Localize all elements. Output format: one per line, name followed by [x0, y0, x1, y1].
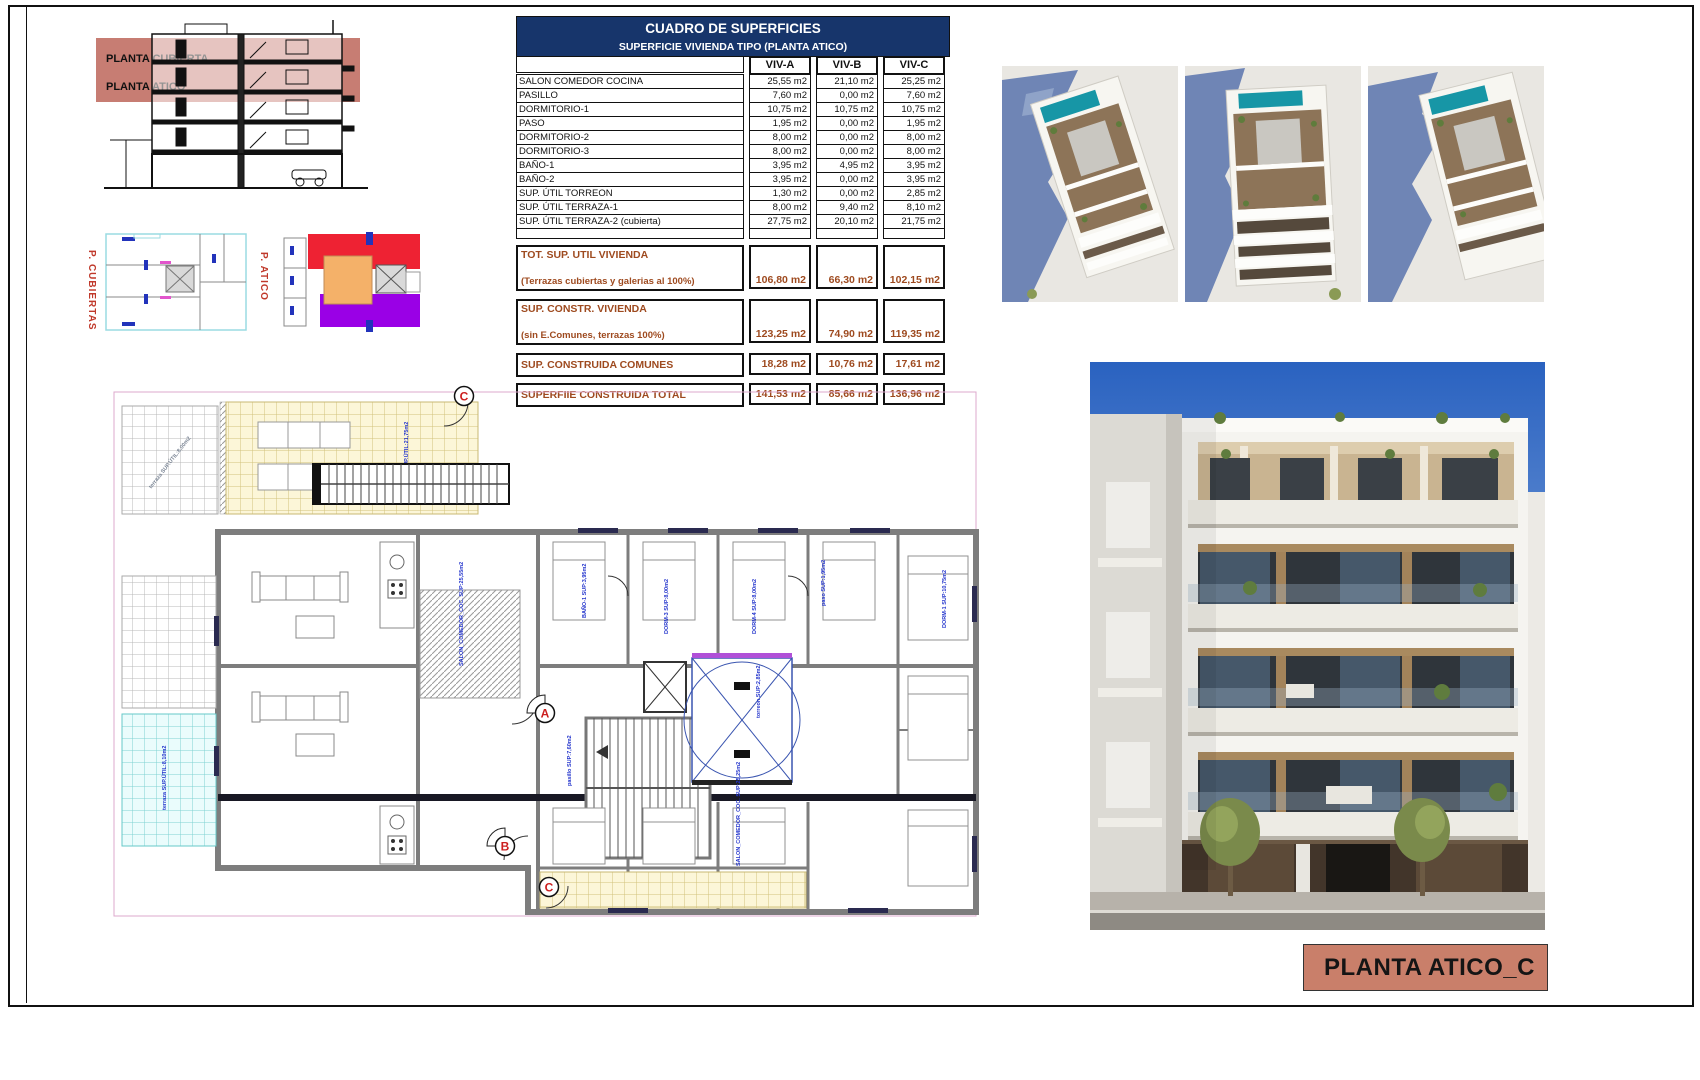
floor-band — [1188, 544, 1518, 632]
row-label: DORMITORIO-2 — [516, 130, 744, 145]
row-value: 21,10 m2 — [816, 74, 878, 89]
row-value: 3,95 m2 — [749, 158, 811, 173]
row-value: 8,00 m2 — [883, 144, 945, 159]
title-block: PLANTA ATICO_C — [1303, 944, 1548, 991]
row-value: 4,95 m2 — [816, 158, 878, 173]
pasillo-label: pasillo SUP:7,60m2 — [567, 735, 573, 786]
summary-value: 74,90 m2 — [816, 299, 878, 343]
terrace-cyan-label: terraza SUP.ÚTIL:8,10m2 — [161, 746, 168, 810]
facade-render — [1090, 362, 1545, 930]
surface-table-rows: SALON COMEDOR COCINA25,55 m221,10 m225,2… — [516, 75, 950, 229]
terrace-bottom-yellow — [540, 872, 806, 908]
terrace-left-cyan — [122, 714, 216, 846]
marker-c: C — [540, 878, 559, 897]
building-section-drawing: PLANTA CUBIERTA PLANTA ATICO — [90, 20, 380, 220]
row-value: 3,95 m2 — [883, 172, 945, 187]
row-value: 7,60 m2 — [749, 88, 811, 103]
row-value: 0,00 m2 — [816, 116, 878, 131]
svg-text:A: A — [541, 707, 550, 721]
row-value: 3,95 m2 — [749, 172, 811, 187]
row-value: 10,75 m2 — [816, 102, 878, 117]
summary-sublabel: (sin E.Comunes, terrazas 100%) — [521, 330, 739, 341]
dorm4-label: DORM-4 SUP:8,00m2 — [752, 579, 758, 634]
svg-text:C: C — [460, 390, 469, 404]
row-value: 0,00 m2 — [816, 130, 878, 145]
row-value: 20,10 m2 — [816, 214, 878, 229]
floor-band — [1188, 648, 1518, 736]
row-label: BAÑO-1 — [516, 158, 744, 173]
row-value: 27,75 m2 — [749, 214, 811, 229]
column-header-viv-a: VIV-A — [749, 56, 811, 75]
salon-c-label: SALON_COMEDOR_COC. SUP:25,25m2 — [736, 762, 742, 866]
mini-plan-atico — [282, 232, 422, 332]
floor-plan: terraza SUP.ÚTIL:8,00m2 terraza-2 SUP.ÚT… — [108, 366, 983, 934]
surface-table-title: CUADRO DE SUPERFICIES — [516, 16, 950, 39]
summary-value: 106,80 m2 — [749, 245, 811, 289]
sidewalk — [1090, 892, 1545, 913]
svg-text:C: C — [545, 881, 554, 895]
summary-value: 102,15 m2 — [883, 245, 945, 289]
svg-text:B: B — [501, 840, 510, 854]
aerial-render-1 — [1002, 66, 1178, 302]
row-value: 8,00 m2 — [749, 200, 811, 215]
drawing-sheet: PLANTA CUBIERTA PLANTA ATICO — [0, 0, 1700, 1080]
terrace-left-gray — [122, 576, 216, 708]
entry-hatch — [420, 590, 520, 698]
row-value: 9,40 m2 — [816, 200, 878, 215]
table-row: SALON COMEDOR COCINA25,55 m221,10 m225,2… — [516, 75, 950, 89]
row-value: 8,10 m2 — [883, 200, 945, 215]
aerial-render-2 — [1185, 66, 1361, 302]
row-value: 0,00 m2 — [816, 144, 878, 159]
row-value: 8,00 m2 — [883, 130, 945, 145]
summary-value: 123,25 m2 — [749, 299, 811, 343]
row-label: SUP. ÚTIL TERRAZA-2 (cubierta) — [516, 214, 744, 229]
marker-c-top: C — [455, 387, 474, 406]
row-value: 2,85 m2 — [883, 186, 945, 201]
table-row: PASILLO7,60 m20,00 m27,60 m2 — [516, 89, 950, 103]
road — [1090, 913, 1545, 930]
mini-plan-cubiertas — [104, 232, 248, 332]
summary-sublabel: (Terrazas cubiertas y galerias al 100%) — [521, 276, 739, 287]
row-value: 21,75 m2 — [883, 214, 945, 229]
row-value: 10,75 m2 — [749, 102, 811, 117]
summary-total-util: TOT. SUP. UTIL VIVIENDA(Terrazas cubiert… — [516, 245, 950, 291]
table-row: SUP. ÚTIL TERRAZA-18,00 m29,40 m28,10 m2 — [516, 201, 950, 215]
row-label: BAÑO-2 — [516, 172, 744, 187]
surface-table-columns: VIV-A VIV-B VIV-C — [516, 57, 950, 75]
column-header-viv-c: VIV-C — [883, 56, 945, 75]
row-label: SUP. ÚTIL TERRAZA-1 — [516, 200, 744, 215]
column-header-empty — [516, 56, 744, 73]
row-label: SUP. ÚTIL TORREON — [516, 186, 744, 201]
table-row: DORMITORIO-38,00 m20,00 m28,00 m2 — [516, 145, 950, 159]
row-value: 8,00 m2 — [749, 144, 811, 159]
row-value: 3,95 m2 — [883, 158, 945, 173]
aerial-render-3 — [1368, 66, 1544, 302]
table-row: BAÑO-23,95 m20,00 m23,95 m2 — [516, 173, 950, 187]
surface-table-subtitle: SUPERFICIE VIVIENDA TIPO (PLANTA ATICO) — [516, 39, 950, 57]
table-row: SUP. ÚTIL TERRAZA-2 (cubierta)27,75 m220… — [516, 215, 950, 229]
dorm1-label: DORM-1 SUP:10,75m2 — [942, 570, 948, 628]
column-header-viv-b: VIV-B — [816, 56, 878, 75]
table-row: SUP. ÚTIL TORREON1,30 m20,00 m22,85 m2 — [516, 187, 950, 201]
row-value: 25,25 m2 — [883, 74, 945, 89]
row-value: 1,95 m2 — [749, 116, 811, 131]
table-row: BAÑO-13,95 m24,95 m23,95 m2 — [516, 159, 950, 173]
table-row: DORMITORIO-110,75 m210,75 m210,75 m2 — [516, 103, 950, 117]
summary-label: SUP. CONSTR. VIVIENDA — [521, 303, 739, 315]
table-row: DORMITORIO-28,00 m20,00 m28,00 m2 — [516, 131, 950, 145]
table-empty-row — [516, 229, 950, 239]
penthouse-band — [1188, 442, 1518, 528]
row-label: DORMITORIO-1 — [516, 102, 744, 117]
torreon-label: torreon SUP:2,85m2 — [756, 665, 762, 718]
exterior-stair — [313, 464, 509, 504]
surface-table: CUADRO DE SUPERFICIES SUPERFICIE VIVIEND… — [516, 16, 950, 407]
row-value: 10,75 m2 — [883, 102, 945, 117]
row-value: 0,00 m2 — [816, 172, 878, 187]
sheet-title: PLANTA ATICO_C — [1324, 954, 1535, 982]
mini-plan-left-label: P. CUBIERTAS — [86, 250, 97, 331]
row-value: 1,30 m2 — [749, 186, 811, 201]
dorm3-label: DORM-3 SUP:8,00m2 — [664, 579, 670, 634]
row-label: PASO — [516, 116, 744, 131]
row-value: 7,60 m2 — [883, 88, 945, 103]
sheet-margin-line — [26, 5, 27, 1003]
summary-value: 66,30 m2 — [816, 245, 878, 289]
row-value: 8,00 m2 — [749, 130, 811, 145]
mini-orange-zone — [324, 256, 372, 304]
bano1-label: BAÑO-1 SUP:3,95m2 — [581, 564, 588, 618]
summary-value: 119,35 m2 — [883, 299, 945, 343]
row-label: DORMITORIO-3 — [516, 144, 744, 159]
kitchen-c — [380, 806, 414, 864]
paso-label: paso SUP:1,95m2 — [821, 560, 827, 606]
summary-constr-vivienda: SUP. CONSTR. VIVIENDA(sin E.Comunes, ter… — [516, 299, 950, 345]
summary-label: TOT. SUP. UTIL VIVIENDA — [521, 249, 739, 261]
aerial-renders — [1002, 66, 1544, 302]
row-label: SALON COMEDOR COCINA — [516, 74, 744, 89]
mini-plan-right-label: P. ATICO — [258, 252, 269, 301]
row-value: 0,00 m2 — [816, 88, 878, 103]
table-row: PASO1,95 m20,00 m21,95 m2 — [516, 117, 950, 131]
row-label: PASILLO — [516, 88, 744, 103]
row-value: 1,95 m2 — [883, 116, 945, 131]
salon-a-label: SALON_COMEDOR_COC. SUP:25,55m2 — [459, 562, 465, 666]
kitchen-a — [380, 542, 414, 628]
torreon: torreon SUP:2,85m2 — [684, 653, 800, 785]
row-value: 0,00 m2 — [816, 186, 878, 201]
row-value: 25,55 m2 — [749, 74, 811, 89]
elevator — [644, 662, 686, 712]
